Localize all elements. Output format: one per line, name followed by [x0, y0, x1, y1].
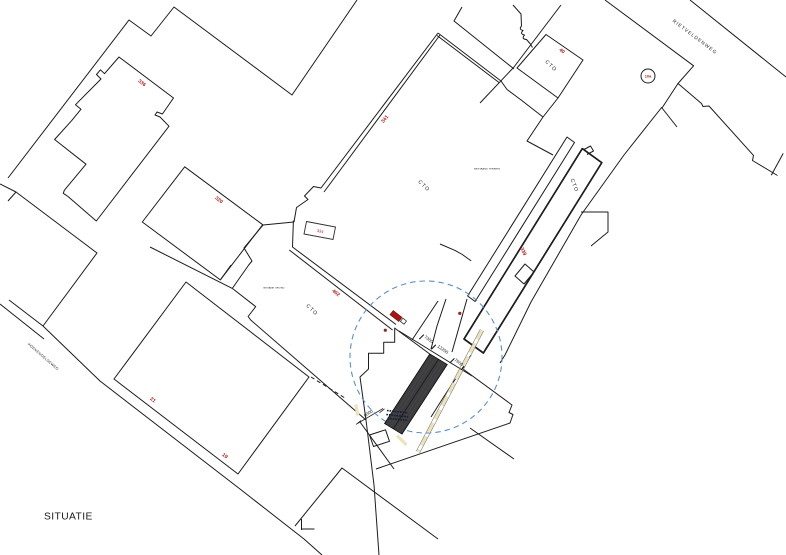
svg-text:10a: 10a	[645, 74, 652, 79]
svg-text:BEGANE GROND: BEGANE GROND	[264, 287, 285, 290]
svg-text:BESTAAND TERREIN: BESTAAND TERREIN	[474, 168, 500, 171]
svg-text:SITUATIE: SITUATIE	[44, 512, 93, 523]
